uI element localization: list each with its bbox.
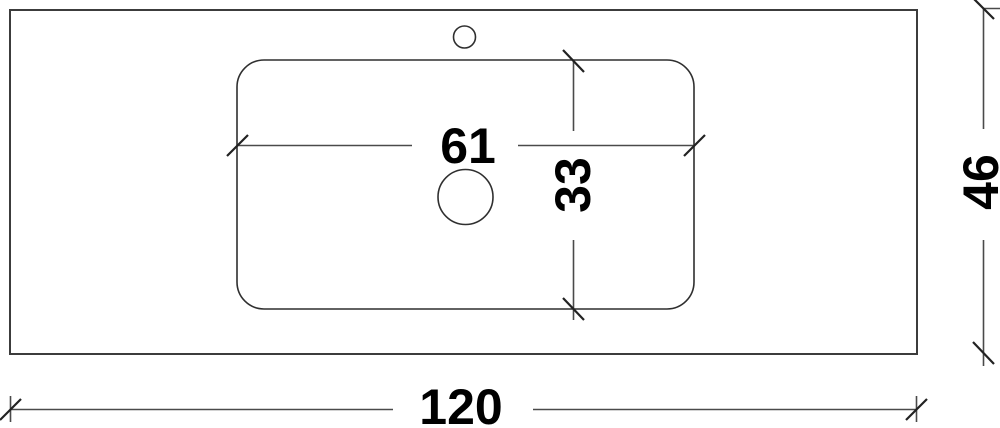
- technical-drawing-canvas: 61 33 120 46: [0, 0, 1000, 428]
- basin-outline: [237, 60, 694, 309]
- dim-countertop-width-value: 120: [419, 379, 502, 428]
- countertop-outline: [10, 10, 917, 354]
- dim-basin-depth-value: 33: [545, 157, 601, 213]
- dim-countertop-width: 120: [0, 379, 927, 428]
- dim-basin-width-value: 61: [440, 118, 496, 174]
- dim-countertop-depth-value: 46: [953, 154, 1000, 210]
- dim-basin-depth: 33: [545, 50, 601, 320]
- drain-hole: [438, 170, 493, 225]
- dim-countertop-depth: 46: [953, 0, 1000, 366]
- dim-basin-width: 61: [227, 118, 705, 174]
- faucet-hole: [454, 26, 476, 48]
